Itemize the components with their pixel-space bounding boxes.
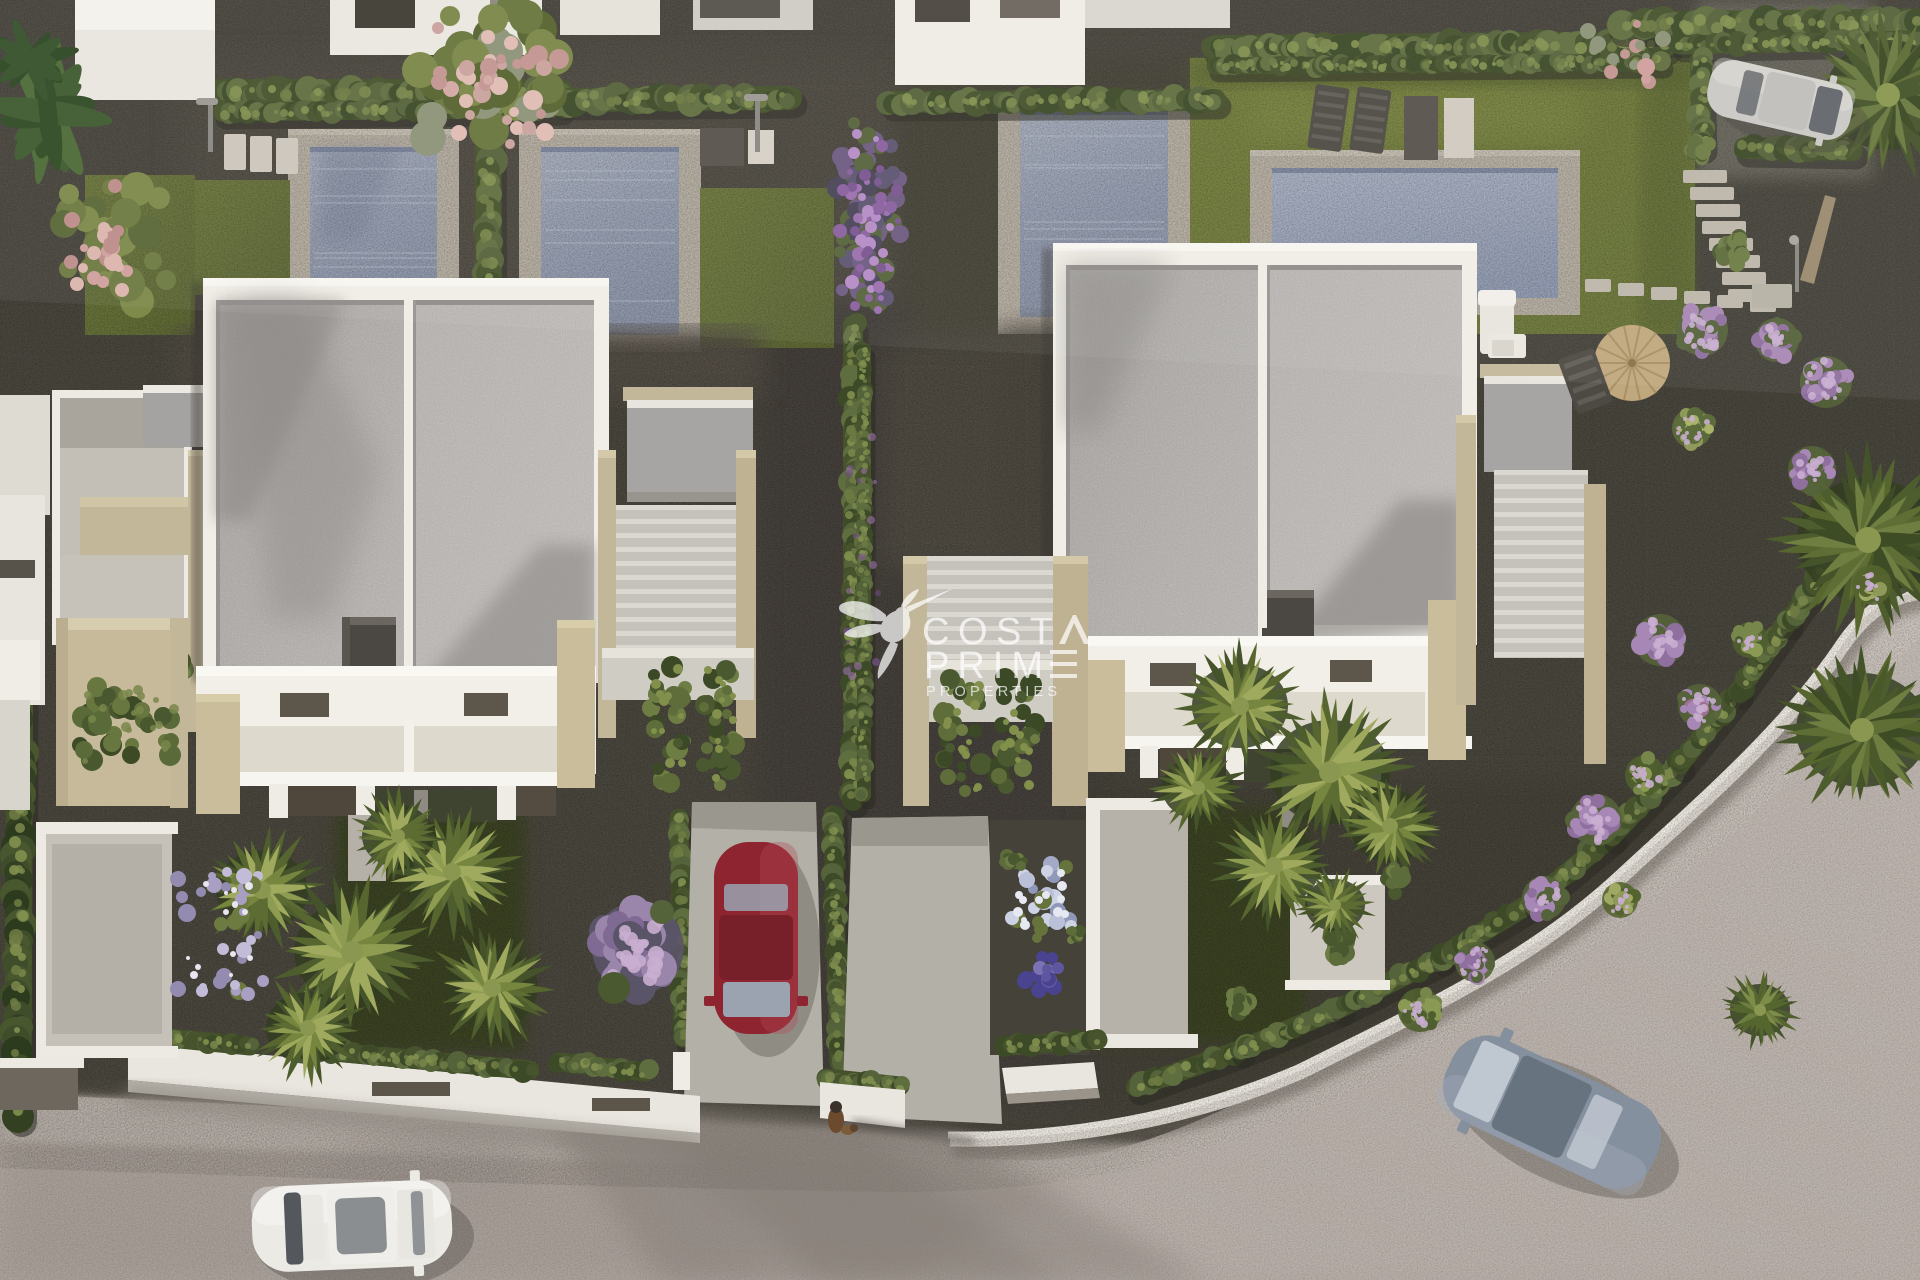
svg-text:PRIM: PRIM: [924, 645, 1051, 687]
svg-text:PROPERTIES: PROPERTIES: [926, 684, 1061, 700]
